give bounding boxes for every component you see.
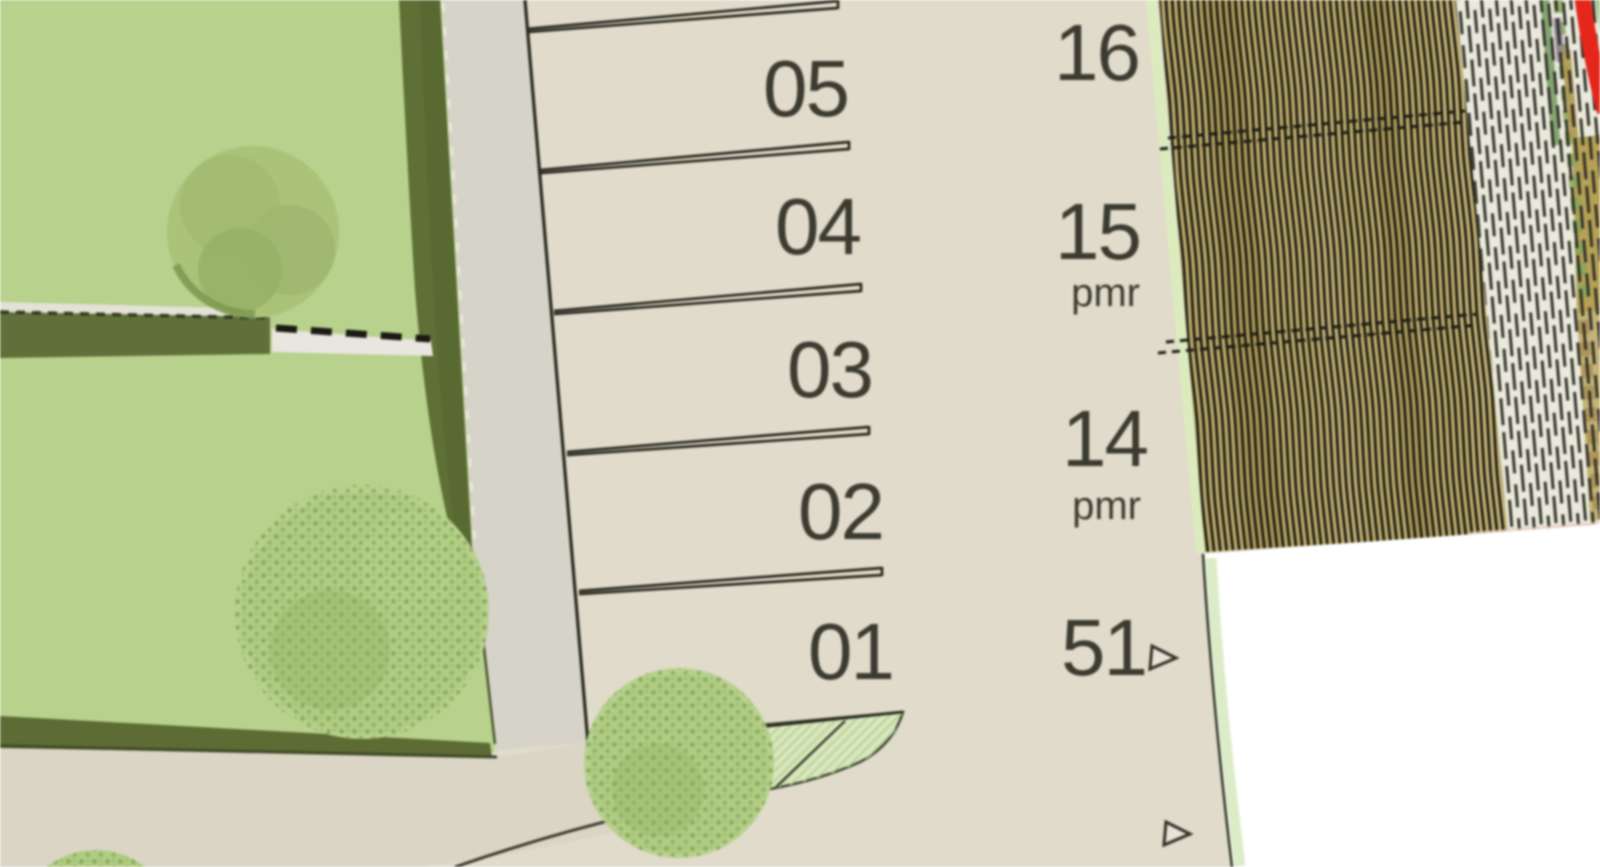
svg-text:14: 14 — [1062, 394, 1147, 483]
svg-text:03: 03 — [787, 325, 872, 414]
svg-text:16: 16 — [1054, 8, 1139, 97]
svg-text:pmr: pmr — [1072, 484, 1141, 528]
svg-text:04: 04 — [775, 182, 860, 271]
svg-text:15: 15 — [1055, 187, 1140, 276]
svg-text:02: 02 — [798, 467, 883, 556]
svg-text:51: 51 — [1061, 603, 1146, 692]
svg-text:05: 05 — [763, 44, 848, 133]
svg-text:01: 01 — [808, 607, 893, 696]
svg-text:pmr: pmr — [1071, 271, 1140, 315]
